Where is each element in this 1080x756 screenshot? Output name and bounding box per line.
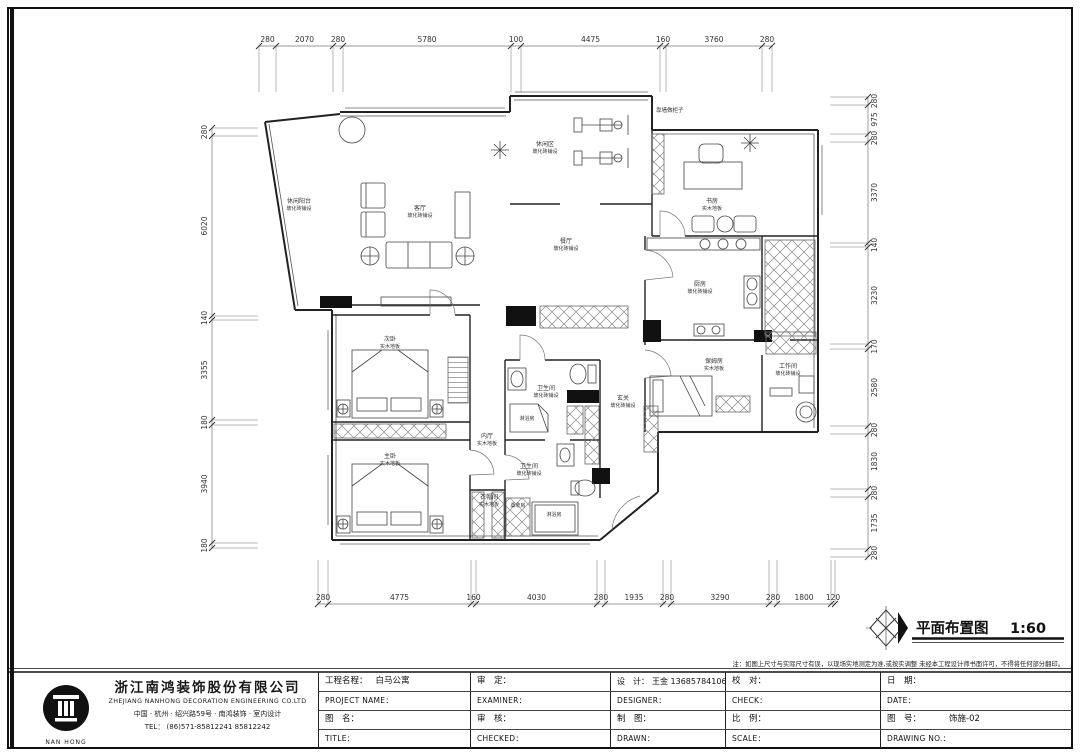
annotation-shower-1: 淋浴房 [519,415,534,422]
field-number-en: DRAWING NO.： [882,729,1071,748]
room-finish: 玻化砖铺设 [533,392,558,399]
field-designer: 设 计：王金 13685784106 [612,672,729,691]
room-finish: 玻化砖铺设 [610,402,635,409]
field-date-en: DATE： [882,691,1071,710]
svg-text:4030: 4030 [527,593,546,602]
svg-text:280: 280 [660,593,675,602]
interior-walls [332,130,818,540]
room-label: 内厅 [481,432,493,440]
svg-text:280: 280 [760,35,775,44]
room-label: 主卧 [384,452,396,460]
sheet-note: 注：如图上尺寸与实际尺寸有误，以现场实地测定为准,或按实调整 未经本工程设计师书… [614,659,1064,668]
svg-text:180: 180 [200,538,209,553]
company-address: 中国 · 杭州 · 绍兴路59号 · 南鸿装饰 · 室内设计 [100,709,315,719]
svg-text:1830: 1830 [870,452,879,471]
field-scale-en: SCALE： [727,729,883,748]
drawing-sheet: 休闲阳台 玻化砖铺设 客厅 玻化砖铺设 休闲区 玻化砖铺设 书房 实木地板 餐厅… [0,0,1080,756]
furniture-maid-room [650,376,712,416]
field-number: 图 号：饰施-02 [882,710,1071,729]
svg-text:2580: 2580 [870,378,879,397]
room-label: 衣帽间 [480,493,498,501]
svg-text:140: 140 [870,238,879,253]
room-finish: 实木地板 [704,365,724,372]
svg-text:3355: 3355 [200,360,209,379]
room-label: 工作间 [779,362,797,370]
field-project-name-en: PROJECT NAME： [320,691,473,710]
svg-text:280: 280 [260,35,275,44]
furniture-leisure-area [574,115,628,168]
field-review-en: CHECKED： [472,729,613,748]
room-finish: 玻化砖铺设 [775,370,800,377]
svg-text:280: 280 [870,94,879,109]
svg-text:280: 280 [594,593,609,602]
field-draft-en: DRAWN： [612,729,729,748]
svg-text:4475: 4475 [581,35,600,44]
room-finish: 实木地板 [702,205,722,212]
room-finish: 玻化砖铺设 [553,245,578,252]
room-label: 卫生间 [520,462,538,470]
field-examine: 审 定： [472,672,613,691]
svg-text:1935: 1935 [624,593,643,602]
svg-text:100: 100 [509,35,524,44]
svg-text:4775: 4775 [390,593,409,602]
room-label: 客厅 [414,204,426,212]
field-examine-en: EXAMINER： [472,691,613,710]
drawing-caption: 平面布置图 1:60 [866,606,1064,650]
annotation-cabinet: 靠墙做柜子 [656,106,684,114]
svg-text:1735: 1735 [870,513,879,532]
number-label: 图 号： [887,714,921,724]
field-date: 日 期： [882,672,1071,691]
room-label: 厨房 [694,280,706,288]
svg-text:280: 280 [331,35,346,44]
svg-text:170: 170 [870,339,879,354]
svg-text:280: 280 [870,423,879,438]
company-tel: TEL： (86)571-85812241 85812242 [100,722,315,732]
room-label: 休闲区 [536,140,554,148]
room-finish: 玻化砖铺设 [687,288,712,295]
svg-text:5780: 5780 [417,35,436,44]
company-name-en: ZHEJIANG NANHONG DECORATION ENGINEERING … [100,698,315,705]
field-draft: 制 图： [612,710,729,729]
svg-text:280: 280 [316,593,331,602]
room-finish: 玻化砖铺设 [516,470,541,477]
sheet-frame [8,8,1072,748]
svg-text:280: 280 [200,125,209,140]
designer-value: 王金 13685784106 [652,677,727,686]
company-info: 浙江南鸿装饰股份有限公司 ZHEJIANG NANHONG DECORATION… [100,676,315,732]
room-label: 休闲阳台 [287,197,311,205]
project-label: 工程名程： [325,676,368,686]
svg-text:3760: 3760 [704,35,723,44]
designer-label: 设 计： [617,677,649,686]
number-value: 饰施-02 [949,714,980,724]
svg-text:180: 180 [200,415,209,430]
room-finish: 实木地板 [477,440,497,447]
logo-caption: NAN HONG [38,739,94,746]
furniture-study [684,134,759,232]
field-sheet-name-en: TITLE： [320,729,473,748]
svg-text:280: 280 [766,593,781,602]
furniture-master-bedroom [337,464,443,533]
room-label: 保姆房 [705,357,723,365]
furniture-bedroom-2 [337,350,443,418]
annotation-shower-2: 淋浴房 [546,511,561,518]
room-label: 次卧 [384,335,396,343]
svg-text:160: 160 [466,593,481,602]
svg-text:280: 280 [870,131,879,146]
room-label: 餐厅 [560,237,572,245]
room-label: 书房 [706,197,718,205]
room-label: 卫生间 [537,384,555,392]
svg-text:160: 160 [656,35,671,44]
furniture-work-balcony [770,376,816,422]
caption-title: 平面布置图 [916,619,989,637]
field-proof: 校 对： [727,672,883,691]
caption-scale: 1:60 [1010,621,1046,637]
room-finish: 实木地板 [479,501,499,508]
field-project-name: 工程名程：白马公寓 [320,672,473,691]
closet-hatching [334,134,816,538]
svg-text:3940: 3940 [200,474,209,493]
room-finish: 玻化砖铺设 [286,205,311,212]
svg-text:3370: 3370 [870,183,879,202]
company-logo: NAN HONG [38,682,94,746]
svg-text:1800: 1800 [794,593,813,602]
svg-text:3230: 3230 [870,286,879,305]
annotation-sauna: 桑拿房 [510,502,525,509]
svg-text:280: 280 [870,546,879,561]
room-finish: 实木地板 [380,343,400,350]
svg-text:6020: 6020 [200,216,209,235]
floor-plan-canvas: 休闲阳台 玻化砖铺设 客厅 玻化砖铺设 休闲区 玻化砖铺设 书房 实木地板 餐厅… [0,0,1080,756]
field-review: 审 核： [472,710,613,729]
room-finish: 玻化砖铺设 [532,148,557,155]
field-proof-en: CHECK： [727,691,883,710]
room-label: 玄关 [617,394,629,402]
room-finish: 玻化砖铺设 [407,212,432,219]
svg-text:3290: 3290 [710,593,729,602]
field-sheet-name: 图 名： [320,710,473,729]
room-finish: 实木地板 [380,460,400,467]
svg-text:2070: 2070 [295,35,314,44]
north-diamond-icon [866,606,908,650]
svg-text:975: 975 [870,112,879,127]
project-value: 白马公寓 [376,676,410,686]
company-name-cn: 浙江南鸿装饰股份有限公司 [100,676,315,696]
svg-text:120: 120 [826,593,841,602]
svg-text:280: 280 [870,486,879,501]
svg-text:140: 140 [200,311,209,326]
column-logo-icon [40,682,92,734]
field-designer-en: DESIGNER： [612,691,729,710]
field-scale: 比 例： [727,710,883,729]
